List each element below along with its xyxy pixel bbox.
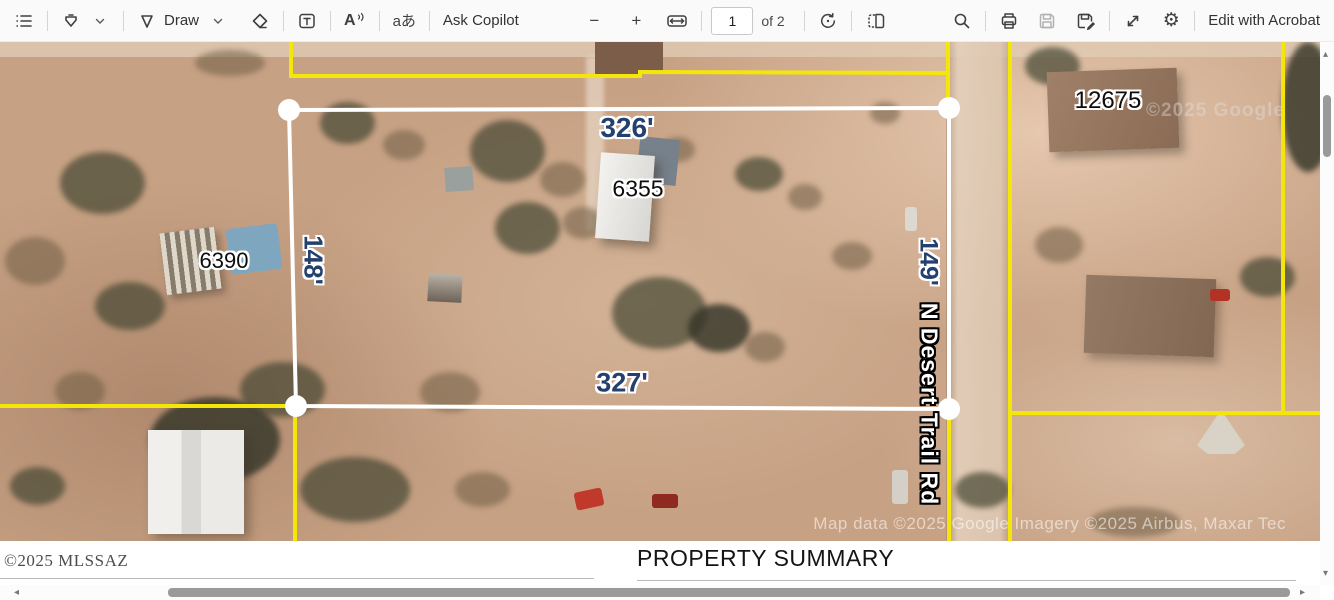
save-as-icon — [1075, 11, 1096, 31]
horizontal-scrollbar[interactable]: ◂ ▸ — [0, 585, 1320, 600]
gear-icon: ⚙ — [1163, 11, 1180, 30]
section-title: PROPERTY SUMMARY — [637, 545, 894, 572]
toolbar-divider — [701, 11, 702, 31]
toolbar-divider — [1194, 11, 1195, 31]
draw-options-button[interactable] — [204, 6, 232, 36]
pen-icon — [137, 11, 157, 31]
fullscreen-expand-icon — [1123, 11, 1143, 31]
zoom-in-button[interactable]: + — [622, 6, 650, 36]
read-aloud-icon: A — [344, 12, 356, 30]
ask-copilot-label: Ask Copilot — [443, 12, 519, 29]
pdf-toolbar: Draw A aあ Ask Copilot — [0, 0, 1334, 42]
scrollbar-corner — [1320, 585, 1334, 600]
road-name-label: N Desert Trail Rd — [916, 303, 943, 505]
eraser-icon — [250, 11, 270, 31]
draw-label: Draw — [164, 12, 199, 29]
translate-button[interactable]: aあ — [389, 6, 420, 36]
rotate-button[interactable] — [814, 6, 842, 36]
fit-to-width-icon — [666, 11, 688, 31]
toolbar-divider — [429, 11, 430, 31]
dimension-label-right: 149' — [914, 238, 943, 286]
mls-copyright: ©2025 MLSSAZ — [4, 551, 128, 571]
address-label-subject: 6355 — [612, 176, 663, 203]
toolbar-divider — [123, 11, 124, 31]
table-of-contents-icon — [14, 11, 34, 31]
two-page-view-icon — [865, 11, 887, 31]
edit-with-acrobat-button[interactable]: Edit with Acrobat — [1204, 6, 1324, 36]
highlighter-icon — [61, 11, 81, 31]
toolbar-divider — [330, 11, 331, 31]
chevron-down-icon — [94, 15, 106, 27]
text-box-icon — [297, 11, 317, 31]
toolbar-divider — [379, 11, 380, 31]
scroll-right-button[interactable]: ▸ — [1300, 588, 1305, 598]
sound-waves-icon — [357, 11, 366, 23]
settings-button[interactable]: ⚙ — [1157, 6, 1185, 36]
scroll-left-button[interactable]: ◂ — [14, 588, 19, 598]
parcel-boundaries — [0, 42, 1334, 541]
scroll-up-button[interactable]: ▴ — [1323, 50, 1328, 60]
toolbar-divider — [851, 11, 852, 31]
ask-copilot-button[interactable]: Ask Copilot — [439, 6, 523, 36]
yellow-parcel-lines — [0, 42, 1334, 541]
zoom-out-button[interactable]: − — [580, 6, 608, 36]
page-view-button[interactable] — [861, 6, 891, 36]
page-count-label: of 2 — [761, 13, 784, 29]
translate-icon: aあ — [393, 10, 416, 31]
save-button — [1033, 6, 1061, 36]
search-button[interactable] — [948, 6, 976, 36]
minus-icon: − — [589, 11, 599, 31]
table-rule-left — [0, 578, 594, 579]
edit-with-acrobat-label: Edit with Acrobat — [1208, 12, 1320, 29]
scroll-down-button[interactable]: ▾ — [1323, 569, 1328, 579]
add-text-button[interactable] — [293, 6, 321, 36]
map-attribution: Map data ©2025 Google Imagery ©2025 Airb… — [813, 514, 1286, 534]
fit-to-width-button[interactable] — [662, 6, 692, 36]
toolbar-divider — [47, 11, 48, 31]
enter-fullscreen-button[interactable] — [1119, 6, 1147, 36]
print-icon — [999, 11, 1019, 31]
dimension-label-left: 148' — [298, 235, 329, 285]
print-button[interactable] — [995, 6, 1023, 36]
page-number-input[interactable] — [711, 7, 753, 35]
satellite-map-page: ©2025 Google 326' 6355 148' 327' 149' N … — [0, 42, 1334, 541]
save-icon — [1037, 11, 1057, 31]
table-rule-right — [637, 580, 1296, 581]
chevron-down-icon — [212, 15, 224, 27]
save-as-button[interactable] — [1071, 6, 1100, 36]
toolbar-divider — [804, 11, 805, 31]
read-aloud-button[interactable]: A — [340, 6, 370, 36]
toolbar-divider — [283, 11, 284, 31]
address-label-west-neighbor: 6390 — [200, 248, 249, 274]
vertical-scrollbar[interactable]: ▴ ▾ — [1320, 42, 1334, 585]
search-icon — [952, 11, 972, 31]
eraser-button[interactable] — [246, 6, 274, 36]
plus-icon: + — [631, 11, 641, 31]
vertical-scrollbar-thumb[interactable] — [1323, 95, 1331, 157]
toolbar-divider — [1109, 11, 1110, 31]
dimension-label-top: 326' — [600, 112, 653, 144]
toolbar-divider — [985, 11, 986, 31]
table-of-contents-button[interactable] — [10, 6, 38, 36]
draw-button[interactable]: Draw — [133, 6, 203, 36]
horizontal-scrollbar-thumb[interactable] — [168, 588, 1290, 597]
rotate-icon — [818, 11, 838, 31]
dimension-label-bottom: 327' — [596, 368, 647, 399]
highlighter-button[interactable] — [57, 6, 85, 36]
highlighter-options-button[interactable] — [86, 6, 114, 36]
address-label-east-neighbor: 12675 — [1075, 87, 1142, 115]
